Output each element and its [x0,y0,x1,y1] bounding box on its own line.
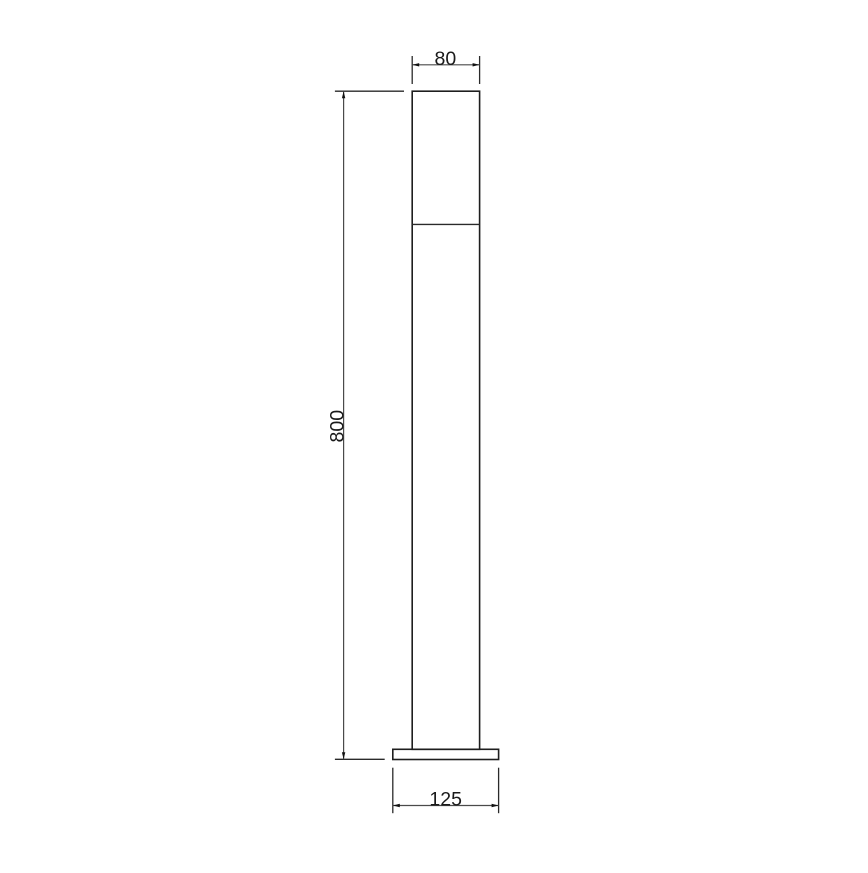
svg-text:800: 800 [326,410,348,443]
svg-text:80: 80 [435,48,457,70]
svg-text:125: 125 [429,789,462,811]
